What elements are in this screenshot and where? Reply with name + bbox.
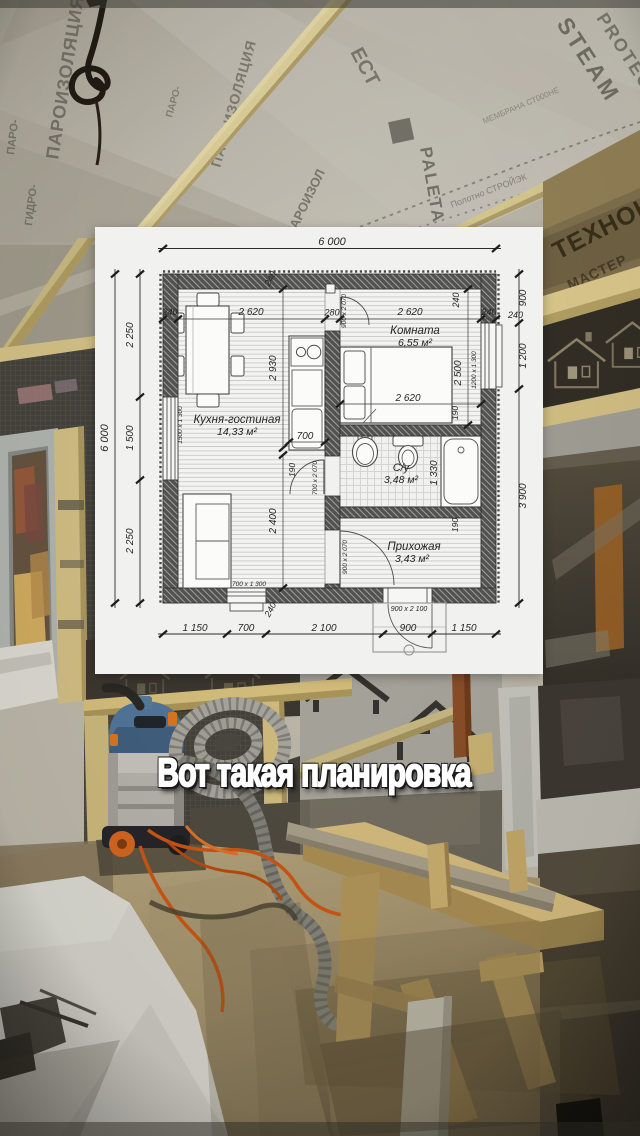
svg-text:240: 240 xyxy=(480,307,496,317)
svg-text:1 150: 1 150 xyxy=(451,623,476,634)
svg-text:14,33 м²: 14,33 м² xyxy=(217,426,257,438)
svg-text:1 330: 1 330 xyxy=(429,460,440,485)
svg-text:700: 700 xyxy=(238,623,255,634)
svg-text:900: 900 xyxy=(518,289,529,306)
svg-text:Кухня-гостиная: Кухня-гостиная xyxy=(194,414,281,426)
svg-text:2 620: 2 620 xyxy=(394,393,420,404)
svg-text:1200 х 1 300: 1200 х 1 300 xyxy=(471,351,478,389)
svg-text:2 100: 2 100 xyxy=(310,623,336,634)
svg-text:2 400: 2 400 xyxy=(268,508,279,534)
svg-text:1 500: 1 500 xyxy=(125,425,136,450)
svg-text:240: 240 xyxy=(451,292,461,308)
svg-text:С/у: С/у xyxy=(393,462,411,474)
svg-text:2 250: 2 250 xyxy=(125,528,136,554)
svg-text:190: 190 xyxy=(450,406,460,420)
svg-text:900 х 2 070: 900 х 2 070 xyxy=(342,540,349,574)
svg-text:700 х 2 070: 700 х 2 070 xyxy=(312,461,319,495)
svg-text:240: 240 xyxy=(507,310,523,320)
svg-text:2 250: 2 250 xyxy=(125,322,136,348)
svg-text:3 900: 3 900 xyxy=(518,483,529,508)
svg-text:190: 190 xyxy=(450,518,460,532)
svg-text:6 000: 6 000 xyxy=(318,236,346,248)
svg-text:240: 240 xyxy=(161,307,177,317)
svg-text:1 200: 1 200 xyxy=(518,343,529,368)
svg-text:6 000: 6 000 xyxy=(99,423,111,451)
svg-text:280: 280 xyxy=(323,308,339,318)
svg-text:2 500: 2 500 xyxy=(453,360,464,386)
svg-text:Прихожая: Прихожая xyxy=(387,541,440,553)
svg-text:190: 190 xyxy=(287,463,297,477)
svg-text:2 620: 2 620 xyxy=(396,307,422,318)
svg-text:700: 700 xyxy=(297,431,314,442)
svg-text:6,55 м²: 6,55 м² xyxy=(398,337,433,349)
svg-text:1500 х 1 300: 1500 х 1 300 xyxy=(177,406,184,444)
svg-text:2 930: 2 930 xyxy=(268,355,279,381)
svg-text:Комната: Комната xyxy=(390,325,440,337)
svg-text:900 х 2 100: 900 х 2 100 xyxy=(391,606,428,613)
svg-text:700 х 1 300: 700 х 1 300 xyxy=(232,581,266,588)
svg-text:2 620: 2 620 xyxy=(237,307,263,318)
svg-text:3,48 м²: 3,48 м² xyxy=(384,474,419,486)
svg-text:1 150: 1 150 xyxy=(182,623,207,634)
svg-text:3,43 м²: 3,43 м² xyxy=(395,553,430,565)
svg-text:900 х 2 070: 900 х 2 070 xyxy=(341,294,348,328)
svg-text:900: 900 xyxy=(400,623,417,634)
